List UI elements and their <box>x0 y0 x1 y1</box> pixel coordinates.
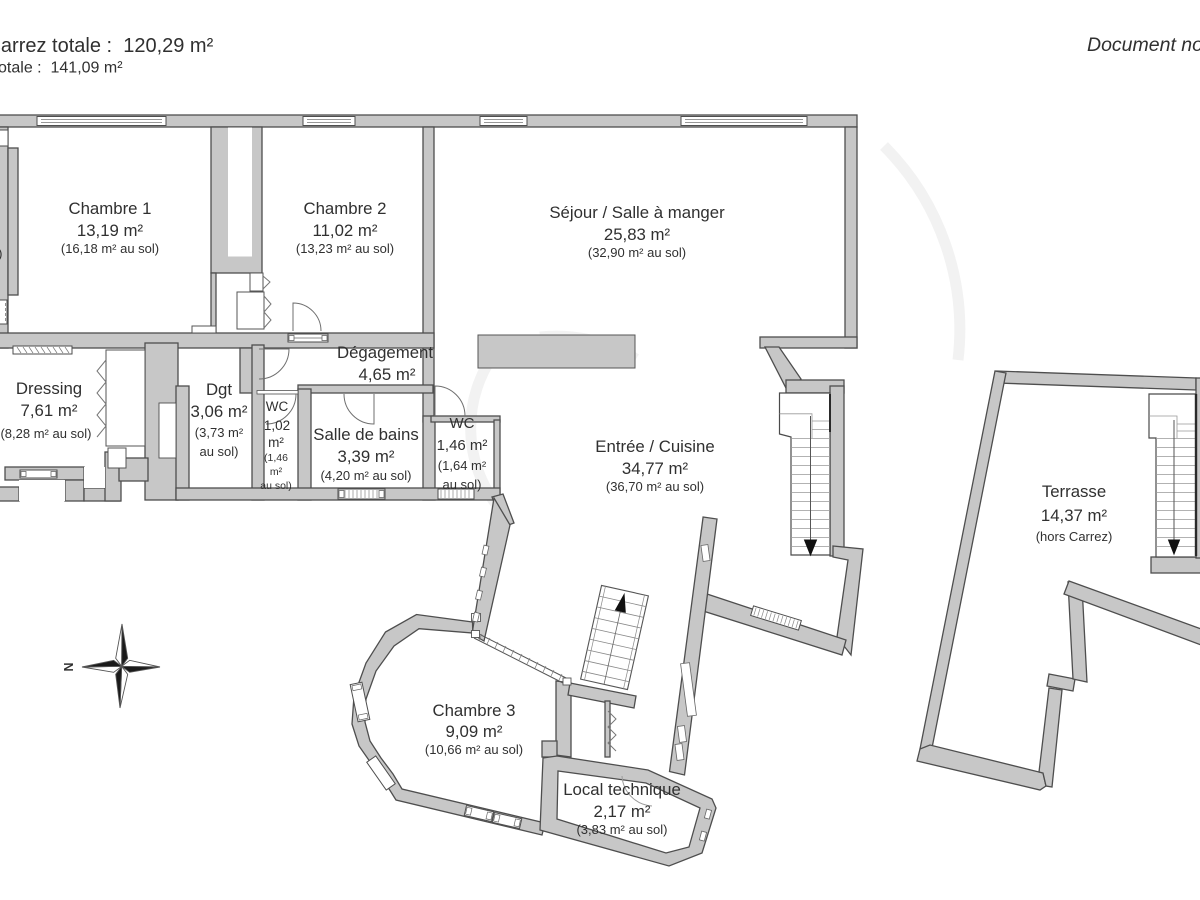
svg-text:Terrasse: Terrasse <box>1042 482 1106 501</box>
svg-text:(16,18 m² au sol): (16,18 m² au sol) <box>61 241 159 256</box>
svg-text:WC: WC <box>450 415 475 432</box>
svg-text:(3,83 m² au sol): (3,83 m² au sol) <box>576 822 667 837</box>
svg-text:9,09 m²: 9,09 m² <box>446 722 503 741</box>
svg-text:(1,46: (1,46 <box>264 452 288 464</box>
svg-text:4,65 m²: 4,65 m² <box>359 365 416 384</box>
svg-text:7,61 m²: 7,61 m² <box>21 401 78 420</box>
svg-text:(13,23 m² au sol): (13,23 m² au sol) <box>296 241 394 256</box>
svg-text:Chambre 3: Chambre 3 <box>432 701 515 720</box>
svg-text:(1,64 m²: (1,64 m² <box>438 458 487 473</box>
svg-text:Chambre 1: Chambre 1 <box>68 199 151 218</box>
svg-text:11,02 m²: 11,02 m² <box>313 221 378 240</box>
svg-text:Entrée / Cuisine: Entrée / Cuisine <box>595 437 714 456</box>
svg-text:m²: m² <box>270 466 283 478</box>
svg-text:(32,90 m² au sol): (32,90 m² au sol) <box>588 245 686 260</box>
svg-text:Surface totale : 141,09 m²: Surface totale : 141,09 m² <box>0 60 123 77</box>
svg-text:Dgt: Dgt <box>206 380 232 399</box>
svg-text:(4,20 m² au sol): (4,20 m² au sol) <box>320 468 411 483</box>
svg-text:WC: WC <box>266 399 289 414</box>
svg-text:Surface Carrez totale : 120,2: Surface Carrez totale : 120,29 m² <box>0 35 214 57</box>
svg-text:2,17 m²: 2,17 m² <box>594 802 651 821</box>
svg-text:au sol): au sol) <box>199 444 238 459</box>
svg-text:Chambre 2: Chambre 2 <box>303 199 386 218</box>
svg-text:Local technique: Local technique <box>563 780 681 799</box>
svg-text:1,46 m²: 1,46 m² <box>437 437 488 454</box>
svg-text:au sol): au sol) <box>442 477 481 492</box>
svg-text:(3,73 m²: (3,73 m² <box>195 425 244 440</box>
svg-text:14,37 m²: 14,37 m² <box>1041 506 1108 525</box>
svg-text:25,83 m²: 25,83 m² <box>604 225 671 244</box>
svg-text:m²: m² <box>268 435 284 450</box>
svg-text:13,19 m²: 13,19 m² <box>77 221 144 240</box>
svg-text:Salle de bains: Salle de bains <box>313 425 418 444</box>
svg-text:Dressing: Dressing <box>16 379 82 398</box>
svg-text:m²): m²) <box>0 246 3 261</box>
svg-text:N: N <box>62 662 76 671</box>
svg-text:3,06 m²: 3,06 m² <box>191 402 248 421</box>
svg-text:Document non contractuel: Document non contractuel <box>1087 34 1200 56</box>
svg-text:(36,70 m² au sol): (36,70 m² au sol) <box>606 479 704 494</box>
svg-text:1,02: 1,02 <box>264 418 290 433</box>
svg-text:(10,66 m² au sol): (10,66 m² au sol) <box>425 742 523 757</box>
svg-text:34,77 m²: 34,77 m² <box>622 459 689 478</box>
svg-text:3,39 m²: 3,39 m² <box>338 447 395 466</box>
svg-text:au sol): au sol) <box>260 480 292 492</box>
svg-text:(8,28 m² au sol): (8,28 m² au sol) <box>0 426 91 441</box>
svg-text:(hors Carrez): (hors Carrez) <box>1036 529 1113 544</box>
svg-text:Séjour / Salle à manger: Séjour / Salle à manger <box>549 203 725 222</box>
svg-text:Dégagement: Dégagement <box>337 343 433 362</box>
